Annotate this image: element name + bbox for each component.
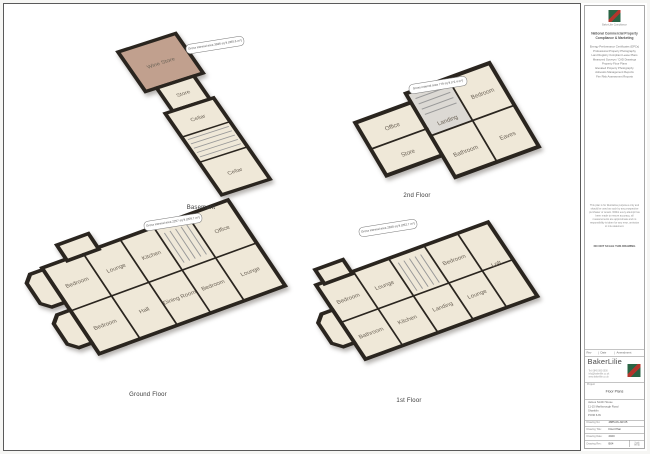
caption-first: 1st Floor: [359, 398, 459, 404]
field-label: Drawing Title:: [585, 428, 609, 431]
amend-col-amendment: Amendment: [615, 352, 644, 355]
company-block: BakerLilie Tel: 0845 000 0000 info@baker…: [585, 356, 644, 383]
contact-line: www.bakerlilie.co.uk: [589, 376, 610, 379]
floorplan-second: Office Store Landing Bedroom Bathroom Ea…: [320, 54, 545, 184]
scale-value: NTS: [635, 443, 640, 446]
caption-basement: Basement: [151, 205, 251, 211]
services-list: Energy Performance Certificates (EPCs) P…: [585, 45, 644, 79]
panel-header-line2: Compliance & Marketing: [585, 36, 644, 40]
project-label: Project: [587, 383, 595, 386]
do-not-scale-note: DO NOT SCALE THIS DRAWING: [585, 245, 644, 248]
field-value: 4885-06-JW-05: [609, 421, 628, 424]
address-line: PO36 6JN: [585, 413, 644, 417]
project-name: Floor Plans: [585, 390, 644, 394]
field-value: 2020: [609, 435, 615, 438]
amend-col-date: Date: [599, 352, 615, 355]
caption-ground: Ground Floor: [98, 392, 198, 398]
field-row-drawing-rev: Drawing Rev: B04 Scale NTS: [585, 440, 644, 449]
site-address: James Smith House 11-15 Marlborough Road…: [585, 399, 644, 421]
side-panel: BakerLilie Compliance National Commercia…: [580, 3, 647, 451]
company-logo-icon: [609, 10, 621, 22]
panel-header: National Commercial Property Compliance …: [585, 32, 644, 41]
company-name: BakerLilie: [588, 358, 622, 367]
field-label: Drawing Rev:: [585, 443, 609, 446]
field-label: Drawing Date:: [585, 435, 609, 438]
side-panel-inner: BakerLilie Compliance National Commercia…: [584, 5, 645, 449]
service-item: Fire Risk Assessment Reports: [585, 75, 644, 79]
caption-second: 2nd Floor: [367, 193, 467, 199]
field-value: B04: [609, 443, 614, 446]
scale-box: Scale NTS: [630, 440, 645, 447]
disclaimer-text: This plan is for illustrative purposes o…: [589, 204, 641, 229]
company-logo-icon: [628, 364, 641, 377]
floorplan-first: Bedroom Bathroom Lounge Kitchen Landing …: [292, 200, 574, 400]
field-label: Drawing No:: [585, 421, 609, 424]
field-value: Floor Plan: [609, 428, 622, 431]
amend-col-rev: Rev: [585, 352, 599, 355]
project-block: Project Floor Plans: [585, 382, 644, 400]
company-contacts: Tel: 0845 000 0000 info@bakerlilie.co.uk…: [589, 370, 610, 379]
logo-caption: BakerLilie Compliance: [585, 24, 644, 27]
floorplan-basement: Wine Store Store Cellar Cellar: [48, 20, 303, 200]
